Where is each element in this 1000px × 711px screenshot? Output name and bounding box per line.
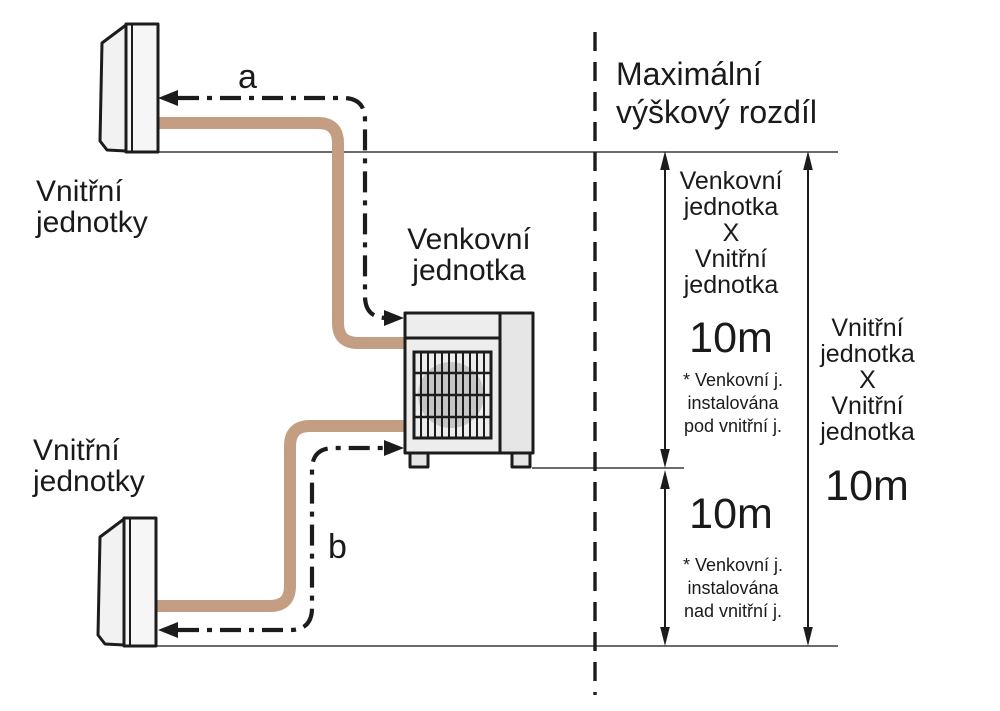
outdoor-unit-foot-left <box>410 453 428 467</box>
outdoor-below-value: 10m <box>661 489 801 541</box>
line-b-label: b <box>328 527 347 568</box>
indoor-indoor-header: Vnitřní jednotka X Vnitřní jednotka <box>810 315 925 445</box>
indoor-units-label-top: Vnitřní jednotky <box>36 176 148 238</box>
outdoor-above-note: * Venkovní j. instalována pod vnitřní j. <box>658 369 808 438</box>
line-a-label: a <box>238 57 257 98</box>
outdoor-unit-label: Venkovní jednotka <box>399 224 539 286</box>
outdoor-unit-foot-right <box>512 453 530 467</box>
indoor-unit-top <box>100 24 158 152</box>
indoor-units-label-bottom: Vnitřní jednotky <box>33 435 145 497</box>
indoor-unit-bottom <box>98 518 156 646</box>
outdoor-above-value: 10m <box>661 313 801 365</box>
pipe-bottom <box>157 426 407 606</box>
outdoor-indoor-header: Venkovní jednotka X Vnitřní jednotka <box>666 168 796 298</box>
outdoor-below-note: * Venkovní j. instalována nad vnitřní j. <box>658 554 808 623</box>
outdoor-unit <box>405 313 533 467</box>
indoor-indoor-value: 10m <box>797 461 937 513</box>
installation-diagram: a b Vnitřní jednotky Vnitřní jednotky Ve… <box>0 0 1000 711</box>
diagram-title: Maximální výškový rozdíl <box>616 55 817 131</box>
